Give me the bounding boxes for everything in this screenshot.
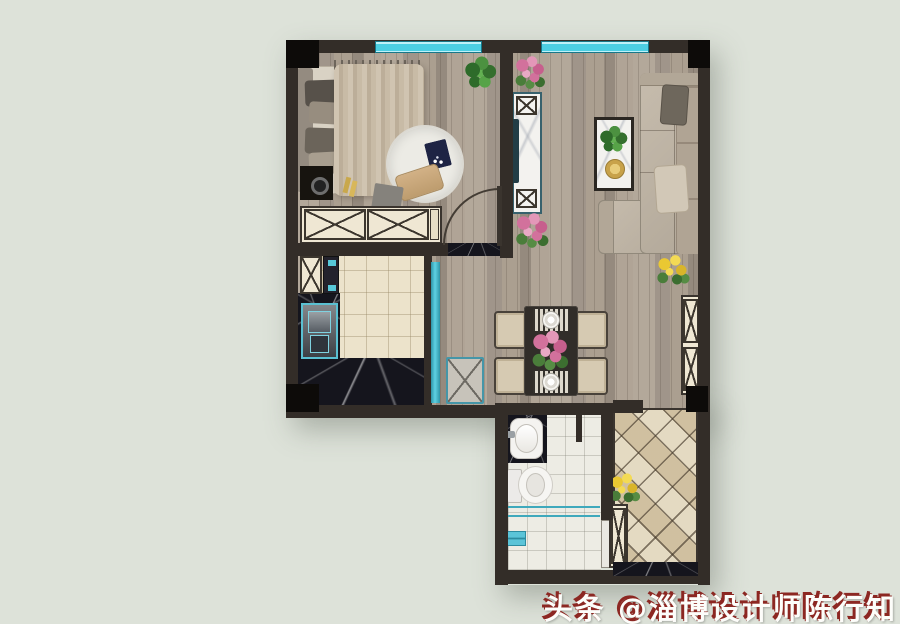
wardrobe-side	[430, 209, 439, 240]
table-centerpiece	[527, 328, 573, 374]
wardrobe-door	[304, 209, 366, 240]
dining-chair	[494, 357, 527, 395]
bedroom-door-leaf	[497, 186, 502, 246]
kitchen-glass-sliding-door	[431, 262, 440, 403]
wall-left	[286, 40, 298, 418]
washbasin	[510, 418, 543, 459]
wall-bathroom-balcony	[601, 403, 613, 520]
pillar-top-left	[286, 40, 319, 68]
tv-cabinet-end	[516, 96, 537, 115]
teal-stool	[446, 357, 484, 404]
tv-cabinet-end	[516, 189, 537, 208]
balcony-threshold-marble	[613, 562, 698, 576]
wall-lower-left	[495, 405, 508, 585]
entry-cabinet-door	[683, 299, 699, 343]
wall-bedroom-kitchen	[286, 243, 456, 256]
wall-bottom-upper-left	[286, 405, 508, 418]
wall-bathroom-top	[495, 403, 613, 415]
yellow-flowers-living	[651, 252, 693, 290]
floorplan-canvas: 头条 @淄博设计师陈行知	[0, 0, 900, 624]
sofa-pillow-dark	[660, 84, 690, 126]
plate	[542, 373, 560, 391]
kitchen-tall-unit	[323, 256, 339, 294]
sofa-seam	[640, 130, 675, 131]
pink-flowers-bottom	[511, 211, 553, 251]
dining-chair	[575, 357, 608, 395]
wall-shower-stub	[576, 412, 582, 442]
bedroom-window	[375, 41, 482, 53]
nightstand	[300, 166, 333, 200]
pillar-bottom-left	[286, 384, 319, 412]
shower-glass-screen	[508, 506, 600, 517]
entry-cabinet-door	[683, 347, 699, 391]
toilet-bowl	[518, 466, 553, 504]
kitchen-cabinet-small	[300, 256, 322, 294]
watermark-text: 头条 @淄博设计师陈行知	[544, 592, 897, 624]
living-room-window	[541, 41, 649, 53]
wardrobe-door	[367, 209, 429, 240]
watermark: 头条 @淄博设计师陈行知	[0, 586, 897, 624]
wall-right	[698, 40, 710, 585]
sofa-pillow-beige	[653, 164, 689, 214]
sofa-armrest-left	[598, 200, 614, 254]
bedroom-plant	[462, 54, 500, 96]
dining-chair	[575, 311, 608, 349]
pink-flowers-top	[511, 54, 549, 92]
coffee-table-plant	[597, 124, 631, 158]
pillar-mid-right	[686, 386, 708, 412]
pillar-top-right	[688, 40, 710, 68]
plate	[542, 311, 560, 329]
balcony-cabinet-door	[611, 508, 626, 564]
floor-drain	[506, 531, 526, 546]
kitchen-sink	[301, 303, 338, 359]
wall-balcony-top	[613, 400, 643, 413]
dining-chair	[494, 311, 527, 349]
coffee-table-tray	[605, 159, 625, 179]
